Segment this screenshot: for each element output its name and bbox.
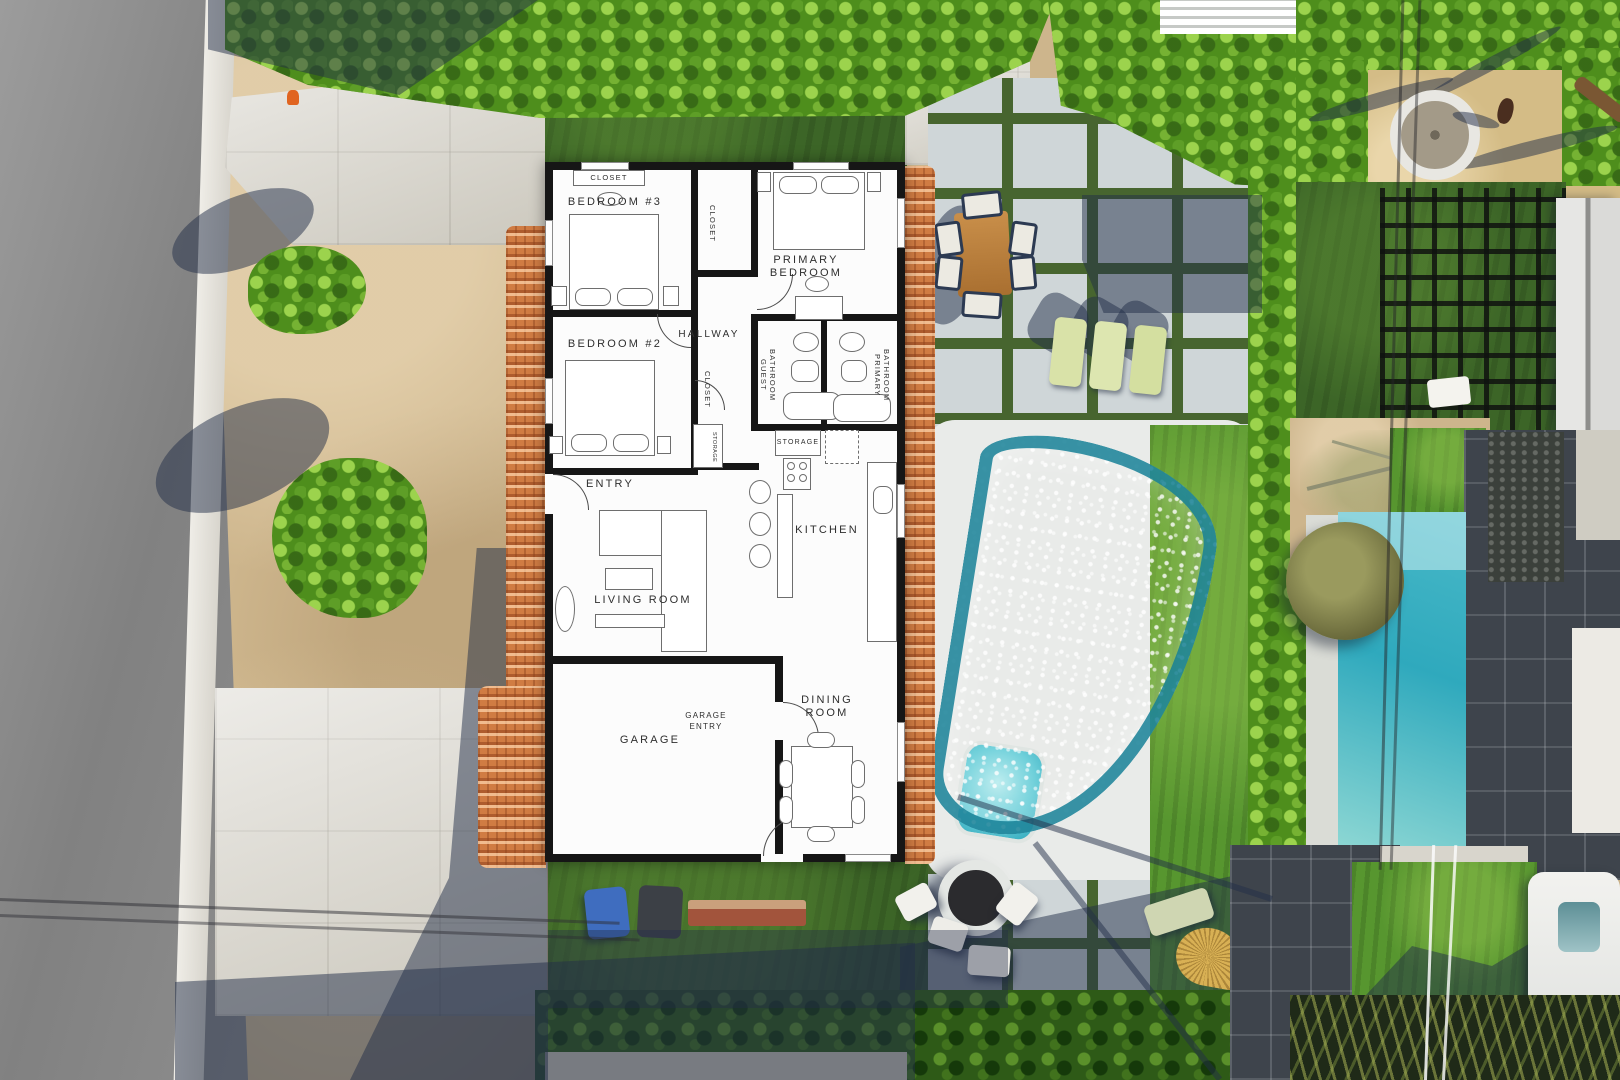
- wall: [545, 468, 698, 475]
- window: [897, 484, 905, 538]
- bar-stool: [749, 512, 771, 536]
- refrigerator: [825, 430, 859, 464]
- room-label-closet: CLOSET: [694, 354, 712, 426]
- room-label-closet: CLOSET: [573, 173, 645, 182]
- hedge: [1296, 60, 1368, 202]
- room-label-primary-bathroom: PRIMARY BATHROOM: [873, 326, 895, 424]
- window: [845, 854, 891, 862]
- pillow: [617, 288, 653, 306]
- nightstand: [663, 286, 679, 306]
- room-label-living-room: LIVING ROOM: [573, 594, 713, 607]
- pillow: [821, 176, 859, 194]
- outdoor-chair: [934, 255, 963, 292]
- burner: [787, 462, 795, 470]
- bar-stool: [749, 544, 771, 568]
- window: [545, 220, 553, 266]
- dining-chair: [851, 760, 865, 788]
- outdoor-chair: [961, 190, 1003, 220]
- wall: [545, 656, 783, 664]
- carport-roof: [1556, 198, 1620, 438]
- sink: [793, 332, 819, 352]
- bar-stool: [749, 480, 771, 504]
- coffee-table: [605, 568, 653, 590]
- roof-tiles: [905, 166, 935, 864]
- room-label-storage: STORAGE: [775, 438, 821, 447]
- room-label-bedroom2: BEDROOM #2: [553, 338, 677, 351]
- pillow: [779, 176, 817, 194]
- room-label-garage: GARAGE: [585, 734, 715, 747]
- window: [897, 722, 905, 782]
- pergola-slats: [1160, 0, 1302, 34]
- room-label-guest-bathroom: GUEST BATHROOM: [759, 326, 783, 424]
- room-label-garage-entry: GARAGE ENTRY: [663, 710, 749, 732]
- room-label-dining-room: DINING ROOM: [787, 694, 867, 720]
- outdoor-dining-table: [954, 211, 1012, 298]
- pillow: [571, 434, 607, 452]
- white-wall: [1572, 628, 1620, 833]
- traffic-cone: [287, 90, 299, 105]
- nightstand: [549, 436, 563, 454]
- brick-planter: [688, 900, 806, 926]
- burner: [799, 474, 807, 482]
- white-box: [1427, 376, 1472, 408]
- tree: [272, 458, 427, 618]
- dining-chair: [779, 796, 793, 824]
- roof-tiles: [506, 226, 546, 692]
- outdoor-chair: [961, 291, 1003, 320]
- roof-tiles: [478, 686, 546, 868]
- floor-plan-overlay: CLOSET BEDROOM #3 CLOSET PRIMARY BEDROOM…: [545, 162, 905, 862]
- vehicle-windshield: [1558, 902, 1600, 952]
- kitchen-island: [777, 494, 793, 598]
- pillow: [575, 288, 611, 306]
- room-label-entry: ENTRY: [550, 478, 670, 491]
- room-label-primary-bedroom: PRIMARY BEDROOM: [747, 254, 865, 280]
- hedge-shadow: [1082, 195, 1262, 313]
- outdoor-chair: [1008, 220, 1038, 257]
- outdoor-chair: [934, 220, 964, 257]
- burner: [787, 474, 795, 482]
- pillow: [613, 434, 649, 452]
- outdoor-chair: [1009, 255, 1038, 291]
- fountain: [1390, 90, 1480, 180]
- window: [793, 162, 849, 170]
- nightstand: [867, 172, 881, 192]
- kitchen-sink: [873, 486, 893, 514]
- rock-bed: [1488, 432, 1564, 582]
- sofa-chaise: [661, 510, 707, 652]
- dining-chair: [851, 796, 865, 824]
- window: [897, 198, 905, 248]
- room-label-closet: CLOSET: [697, 186, 717, 262]
- burner: [799, 462, 807, 470]
- room-label-bedroom3: BEDROOM #3: [553, 196, 677, 209]
- stone-path: [1576, 430, 1620, 540]
- hedge-shadow: [548, 930, 1008, 1008]
- aerial-property-photo: CLOSET BEDROOM #3 CLOSET PRIMARY BEDROOM…: [0, 0, 1620, 1080]
- palm-fronds: [1290, 995, 1620, 1080]
- room-label-storage: STORAGE: [698, 428, 718, 466]
- dining-chair: [779, 760, 793, 788]
- toilet: [841, 360, 867, 382]
- room-label-kitchen: KITCHEN: [773, 524, 881, 537]
- dining-chair: [807, 732, 835, 748]
- window: [581, 162, 629, 170]
- nightstand: [757, 172, 771, 192]
- door-gap: [775, 702, 783, 740]
- side-table: [555, 586, 575, 632]
- desk: [795, 296, 843, 320]
- nightstand: [657, 436, 671, 454]
- nightstand: [551, 286, 567, 306]
- window: [545, 378, 553, 424]
- sink: [839, 332, 865, 352]
- dining-chair: [807, 826, 835, 842]
- toilet: [791, 360, 819, 382]
- dining-table: [791, 746, 853, 828]
- tv-console: [595, 614, 665, 628]
